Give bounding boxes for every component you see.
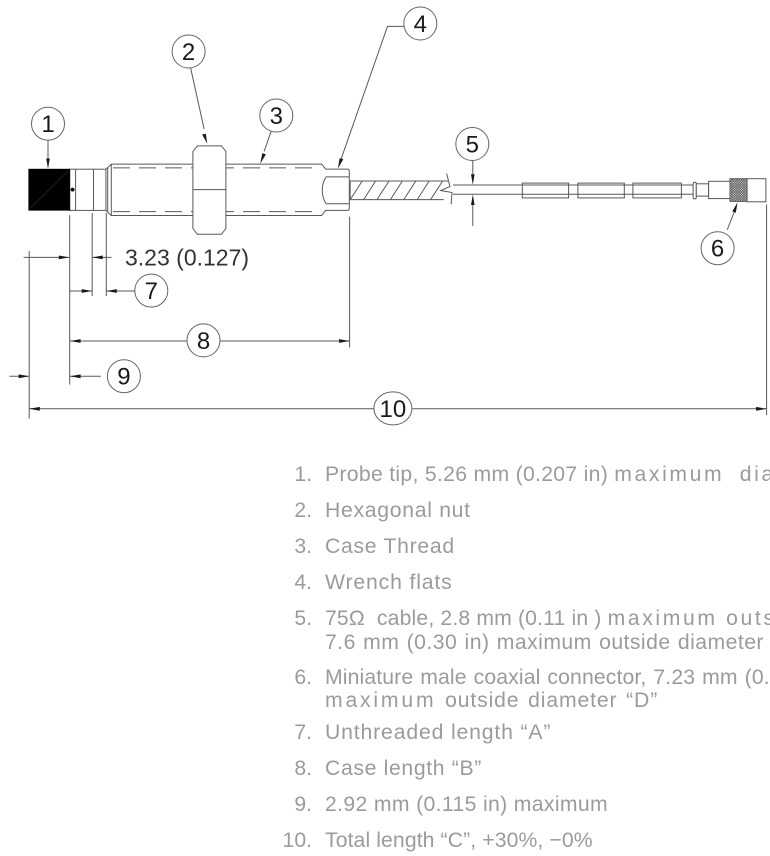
svg-text:9: 9 (117, 364, 130, 391)
svg-text:1: 1 (41, 111, 54, 138)
svg-text:6: 6 (711, 236, 724, 263)
svg-text:3.23 (0.127): 3.23 (0.127) (125, 245, 249, 271)
svg-text:3: 3 (270, 103, 283, 130)
svg-text:10: 10 (380, 396, 407, 423)
svg-text:2: 2 (182, 39, 195, 66)
svg-text:4: 4 (414, 11, 427, 38)
svg-text:7: 7 (145, 278, 158, 305)
svg-text:5: 5 (466, 132, 479, 159)
svg-text:8: 8 (197, 328, 210, 355)
